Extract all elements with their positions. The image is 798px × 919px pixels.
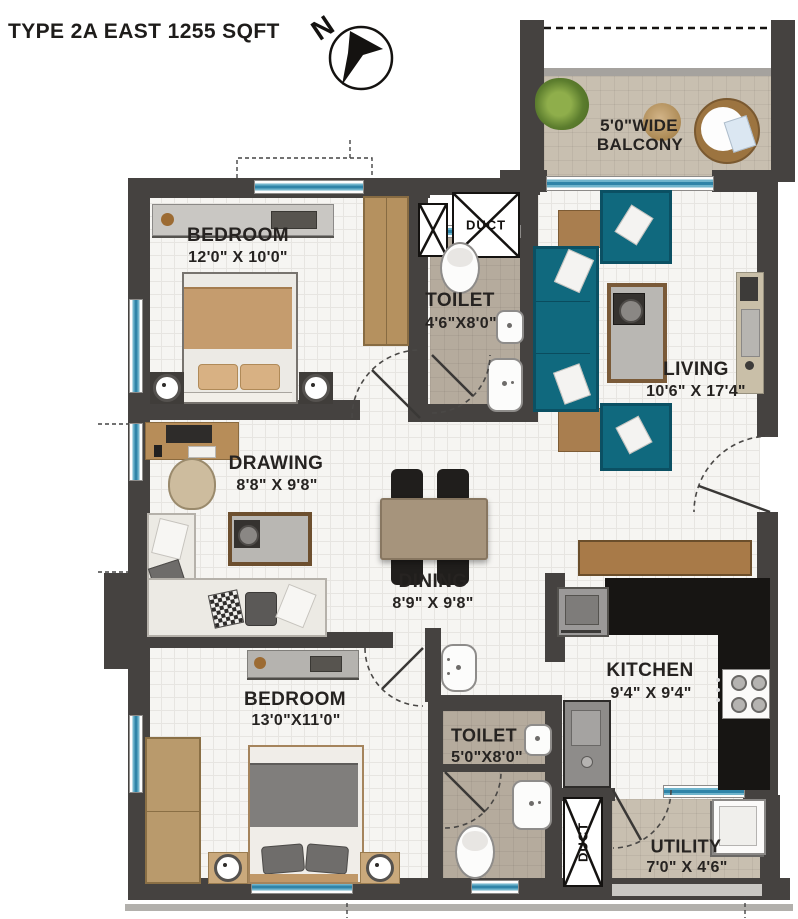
basin-drain bbox=[502, 381, 507, 386]
lamp-icon bbox=[214, 854, 242, 882]
basin-drain bbox=[529, 801, 534, 806]
bed2-pillow-right bbox=[305, 843, 349, 875]
bed-bedroom2 bbox=[248, 745, 364, 884]
stove-knob bbox=[716, 698, 720, 702]
coffee-table-living bbox=[607, 283, 667, 383]
bed1-headboard bbox=[184, 392, 292, 402]
fridge-handle bbox=[581, 756, 593, 768]
basin-drain bbox=[456, 665, 461, 670]
coffee-table-drawing bbox=[228, 512, 312, 566]
bed2-blanket bbox=[250, 763, 358, 827]
nightstand-b2-right bbox=[360, 852, 400, 884]
side-table-bottom bbox=[558, 408, 604, 452]
bed1-pillow-right bbox=[240, 364, 280, 390]
dims-kitchen: 9'4" X 9'4" bbox=[610, 685, 691, 703]
wall-washbasin-stub bbox=[425, 628, 441, 702]
pillow-checkered bbox=[208, 589, 244, 628]
sofa-drawing-horizontal bbox=[147, 578, 327, 637]
dims-toilet2: 5'0"X8'0" bbox=[451, 749, 523, 767]
bench-sideboard bbox=[578, 540, 752, 576]
label-living: LIVING bbox=[663, 359, 729, 381]
wall-left-pier bbox=[104, 573, 130, 669]
laptop-icon bbox=[166, 425, 212, 443]
wall-utility-bottom bbox=[612, 884, 762, 896]
dims-drawing: 8'8" X 9'8" bbox=[236, 477, 317, 495]
basin-tap bbox=[447, 672, 450, 675]
kitchen-sink bbox=[557, 587, 609, 637]
wc-lid bbox=[447, 248, 472, 267]
duct-shaft-small bbox=[418, 203, 448, 257]
nightstand-b2-left bbox=[208, 852, 248, 884]
wardrobe-divider bbox=[147, 811, 199, 812]
label-drawing: DRAWING bbox=[229, 453, 324, 475]
label-toilet1: TOILET bbox=[425, 290, 495, 312]
label-balcony-line1: 5'0"WIDE bbox=[600, 116, 678, 136]
table-tray bbox=[613, 293, 645, 325]
sink-toilet1 bbox=[496, 310, 524, 344]
burner bbox=[751, 697, 767, 713]
dims-dining: 8'9" X 9'8" bbox=[392, 595, 473, 613]
plant-icon bbox=[535, 78, 589, 130]
stove-knob bbox=[716, 688, 720, 692]
window-drawing-left bbox=[130, 424, 142, 480]
armchair-top bbox=[600, 190, 672, 264]
gas-stove bbox=[722, 669, 770, 719]
stove-knob bbox=[716, 678, 720, 682]
sofa-pillow-bottom bbox=[553, 363, 591, 405]
study-desk bbox=[145, 422, 239, 460]
desk-chair bbox=[168, 458, 216, 510]
desk-paper bbox=[188, 446, 216, 458]
wall-balcony-right bbox=[771, 20, 795, 182]
label-utility: UTILITY bbox=[651, 837, 722, 858]
sofa-seam bbox=[536, 301, 590, 302]
duct-bottom-label: DUCT bbox=[576, 822, 591, 862]
sink-bowl bbox=[565, 595, 599, 625]
side-table-top bbox=[558, 210, 604, 248]
label-bedroom1: BEDROOM bbox=[187, 225, 289, 247]
balcony-chair bbox=[694, 98, 760, 164]
lamp-icon bbox=[153, 374, 181, 402]
basin-tap bbox=[447, 658, 450, 661]
nightstand-b1-left bbox=[150, 372, 184, 404]
dims-bedroom1: 12'0" X 10'0" bbox=[188, 249, 288, 267]
projection-line-top bbox=[237, 158, 372, 178]
bed2-headboard bbox=[250, 874, 358, 882]
sink-drain bbox=[507, 323, 512, 328]
wall-toilet2-top bbox=[428, 695, 550, 711]
duct-bottom: DUCT bbox=[563, 797, 603, 887]
tray-bowl bbox=[238, 525, 259, 546]
wc-toilet2 bbox=[455, 825, 495, 879]
armchair-pillow bbox=[614, 205, 653, 246]
wc-toilet1 bbox=[440, 242, 480, 294]
desk-phone bbox=[154, 445, 162, 457]
bed2-pillow-left bbox=[261, 843, 305, 875]
window-bedroom2-left bbox=[130, 716, 142, 792]
sofa-seam bbox=[536, 353, 590, 354]
dims-living: 10'6" X 17'4" bbox=[646, 383, 746, 401]
floor-plan: TYPE 2A EAST 1255 SQFT N bbox=[0, 0, 798, 919]
window-balcony-living bbox=[547, 177, 713, 190]
basin-tap bbox=[538, 801, 541, 804]
wardrobe-divider bbox=[386, 198, 387, 344]
console-knob bbox=[745, 361, 754, 370]
dresser-bedroom2 bbox=[247, 650, 359, 678]
sink-toilet2 bbox=[524, 724, 552, 756]
armchair-pillow bbox=[615, 416, 652, 455]
washbasin-hall bbox=[441, 644, 477, 692]
dining-table bbox=[380, 498, 488, 560]
site-boundary-line bbox=[125, 904, 793, 911]
basin-tap bbox=[511, 381, 514, 384]
bed1-pillow-left bbox=[198, 364, 238, 390]
label-balcony-line2: BALCONY bbox=[597, 135, 683, 155]
tray-bowl bbox=[619, 299, 643, 323]
burner bbox=[751, 675, 767, 691]
label-dining: DINING bbox=[399, 571, 468, 593]
balcony-sill bbox=[544, 68, 771, 76]
console-unit bbox=[736, 272, 764, 394]
lamp-icon bbox=[302, 374, 330, 402]
bed-bedroom1 bbox=[182, 272, 298, 404]
armchair-bottom bbox=[600, 403, 672, 471]
lamp-icon bbox=[366, 854, 394, 882]
dresser-bowl bbox=[161, 213, 174, 226]
kitchen-counter-top bbox=[605, 578, 770, 635]
pillow-dark bbox=[245, 592, 277, 626]
sofa-living bbox=[533, 246, 599, 412]
dresser-tv bbox=[310, 656, 342, 672]
window-bedroom1-left bbox=[130, 300, 142, 392]
washbasin-toilet2 bbox=[512, 780, 552, 830]
washbasin-toilet1 bbox=[487, 358, 523, 412]
burner bbox=[731, 697, 747, 713]
dims-utility: 7'0" X 4'6" bbox=[646, 859, 727, 877]
console-printer bbox=[740, 277, 758, 301]
sink-drain bbox=[535, 736, 540, 741]
wall-toilet2-left bbox=[428, 695, 443, 900]
plan-title: TYPE 2A EAST 1255 SQFT bbox=[8, 20, 280, 44]
sink-edge bbox=[561, 630, 601, 633]
label-bedroom2: BEDROOM bbox=[244, 689, 346, 711]
wardrobe-bedroom2 bbox=[145, 737, 201, 884]
nightstand-b1-right bbox=[299, 372, 333, 404]
dims-toilet1: 4'6"X8'0" bbox=[425, 315, 497, 333]
console-drawers bbox=[741, 309, 760, 357]
fridge-top bbox=[571, 710, 601, 746]
refrigerator bbox=[563, 700, 611, 788]
label-kitchen: KITCHEN bbox=[606, 660, 693, 682]
duct-top-label: DUCT bbox=[466, 218, 506, 233]
bed1-blanket bbox=[184, 287, 292, 349]
north-compass-icon: N bbox=[303, 2, 403, 102]
wardrobe-bedroom1 bbox=[363, 196, 409, 346]
pillow-white bbox=[275, 584, 316, 629]
table-tray bbox=[234, 520, 260, 548]
label-toilet2: TOILET bbox=[451, 726, 517, 747]
window-bedroom1-top bbox=[255, 181, 363, 193]
dresser-bowl bbox=[254, 657, 266, 669]
window-toilet2-bottom bbox=[472, 881, 518, 893]
wall-right-middle bbox=[757, 512, 778, 580]
washer-lid bbox=[719, 806, 757, 846]
sofa-pillow-top bbox=[554, 249, 594, 293]
wc-lid bbox=[462, 831, 487, 851]
dims-bedroom2: 13'0"X11'0" bbox=[251, 712, 340, 730]
burner bbox=[731, 675, 747, 691]
sofa-cushion bbox=[151, 518, 189, 560]
